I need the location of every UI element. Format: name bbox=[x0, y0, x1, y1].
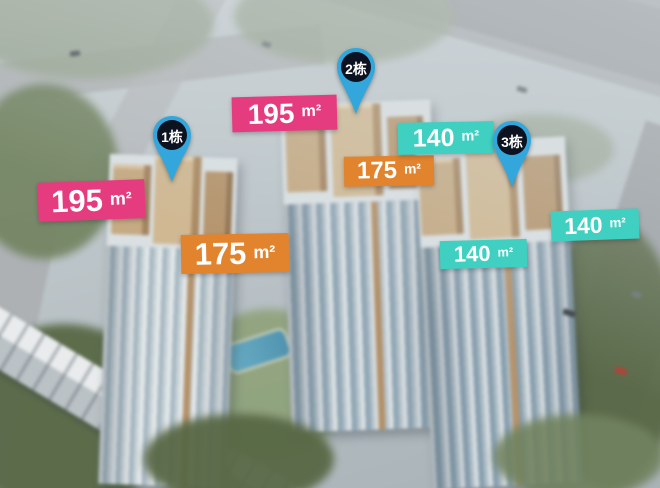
building-pin-2: 2栋 bbox=[334, 46, 378, 116]
area-unit: m² bbox=[253, 242, 275, 260]
area-value: 195 bbox=[51, 185, 104, 218]
area-unit: m² bbox=[609, 216, 626, 230]
area-unit: m² bbox=[461, 129, 479, 144]
area-label-175: 175 m² bbox=[181, 233, 290, 274]
area-label-140: 140 m² bbox=[398, 121, 495, 155]
area-label-140: 140 m² bbox=[551, 208, 640, 241]
pin-label: 2栋 bbox=[334, 59, 378, 79]
area-value: 140 bbox=[413, 125, 455, 151]
area-value: 175 bbox=[194, 238, 246, 270]
area-value: 140 bbox=[454, 243, 491, 266]
area-unit: m² bbox=[404, 162, 421, 176]
annotation-layer: 195 m² 175 m² 195 m² 175 m² 140 m² 140 m… bbox=[0, 0, 660, 488]
area-unit: m² bbox=[301, 103, 321, 120]
building-pin-3: 3栋 bbox=[490, 119, 534, 189]
area-value: 195 bbox=[247, 99, 294, 128]
map-pin-icon bbox=[150, 114, 194, 184]
area-value: 140 bbox=[564, 213, 603, 237]
area-label-175: 175 m² bbox=[344, 155, 435, 187]
pin-label: 1栋 bbox=[150, 127, 194, 147]
building-pin-1: 1栋 bbox=[150, 114, 194, 184]
area-unit: m² bbox=[109, 189, 132, 208]
area-label-195: 195 m² bbox=[232, 95, 338, 133]
area-unit: m² bbox=[497, 246, 513, 259]
map-pin-icon bbox=[490, 119, 534, 189]
aerial-photo-canvas: 195 m² 175 m² 195 m² 175 m² 140 m² 140 m… bbox=[0, 0, 660, 488]
map-pin-icon bbox=[334, 46, 378, 116]
area-label-195: 195 m² bbox=[37, 179, 145, 222]
pin-label: 3栋 bbox=[490, 132, 534, 152]
area-label-140: 140 m² bbox=[440, 239, 528, 269]
area-value: 175 bbox=[357, 159, 397, 184]
